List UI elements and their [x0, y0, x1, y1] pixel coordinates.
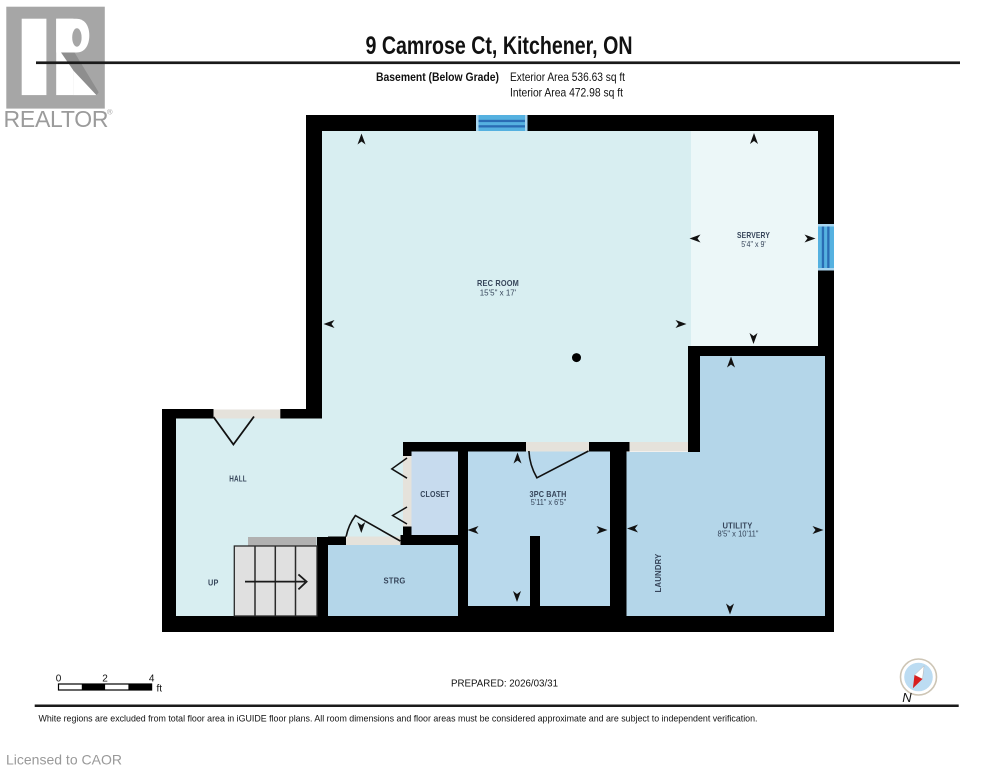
svg-text:STRG: STRG — [384, 577, 406, 586]
svg-text:Interior Area 472.98 sq ft: Interior Area 472.98 sq ft — [510, 86, 624, 100]
svg-text:ft: ft — [157, 684, 163, 695]
svg-text:CLOSET: CLOSET — [420, 490, 450, 499]
svg-text:15'5" x 17': 15'5" x 17' — [480, 289, 517, 298]
svg-text:REALTOR: REALTOR — [4, 106, 110, 132]
svg-text:Basement (Below Grade): Basement (Below Grade) — [376, 70, 499, 84]
svg-text:5'4" x 9': 5'4" x 9' — [741, 240, 766, 249]
svg-text:N: N — [902, 690, 912, 705]
svg-text:White regions are excluded fro: White regions are excluded from total fl… — [39, 713, 758, 724]
svg-text:Licensed to CAOR: Licensed to CAOR — [6, 752, 122, 768]
svg-text:0: 0 — [56, 674, 62, 685]
svg-text:Exterior Area 536.63 sq ft: Exterior Area 536.63 sq ft — [510, 70, 626, 84]
svg-text:5'11" x 6'5": 5'11" x 6'5" — [531, 498, 567, 507]
svg-text:4: 4 — [149, 674, 155, 685]
svg-text:SERVERY: SERVERY — [737, 231, 770, 240]
svg-text:HALL: HALL — [229, 475, 247, 484]
svg-text:®: ® — [107, 108, 113, 117]
svg-text:REC ROOM: REC ROOM — [477, 279, 519, 288]
svg-text:8'5" x 10'11": 8'5" x 10'11" — [718, 530, 759, 539]
svg-text:PREPARED: 2026/03/31: PREPARED: 2026/03/31 — [451, 678, 558, 690]
svg-text:LAUNDRY: LAUNDRY — [654, 553, 663, 592]
svg-text:2: 2 — [102, 674, 108, 685]
svg-text:UP: UP — [208, 579, 219, 588]
svg-text:9 Camrose Ct, Kitchener, ON: 9 Camrose Ct, Kitchener, ON — [366, 32, 633, 60]
